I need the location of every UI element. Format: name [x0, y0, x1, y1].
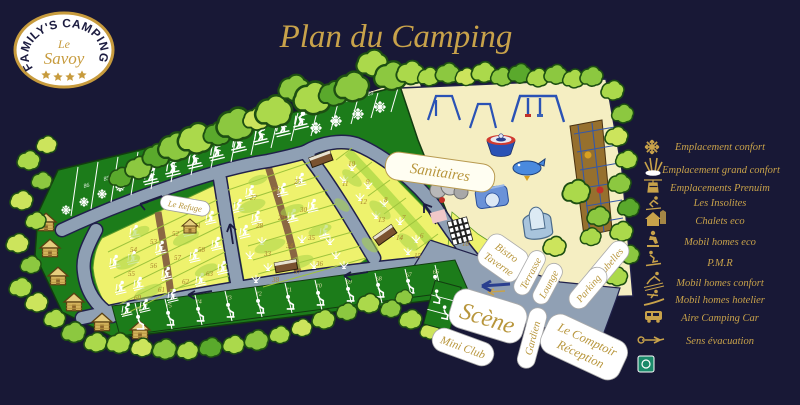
- svg-text:58: 58: [198, 246, 206, 254]
- svg-text:15: 15: [414, 252, 422, 260]
- svg-text:7: 7: [402, 214, 406, 222]
- svg-text:P.M.R: P.M.R: [706, 258, 733, 269]
- svg-text:Plan du Camping: Plan du Camping: [279, 19, 513, 55]
- svg-text:73: 73: [226, 295, 233, 302]
- svg-text:33: 33: [263, 250, 272, 258]
- svg-text:74: 74: [195, 298, 202, 306]
- svg-text:29: 29: [278, 214, 286, 222]
- svg-text:70: 70: [316, 283, 323, 290]
- svg-text:9: 9: [366, 178, 370, 186]
- svg-text:57: 57: [174, 254, 182, 262]
- svg-text:6: 6: [420, 232, 424, 240]
- svg-text:Savoy: Savoy: [44, 49, 85, 68]
- svg-text:56: 56: [150, 262, 158, 270]
- svg-text:72: 72: [256, 291, 263, 298]
- svg-text:38: 38: [271, 276, 280, 284]
- svg-text:36: 36: [315, 260, 324, 268]
- svg-text:28: 28: [256, 222, 264, 230]
- svg-text:Sens évacuation: Sens évacuation: [686, 336, 754, 347]
- svg-text:55: 55: [128, 270, 136, 278]
- svg-text:35: 35: [307, 234, 316, 242]
- svg-text:52: 52: [172, 230, 180, 238]
- svg-text:14: 14: [396, 234, 404, 242]
- svg-text:Emplacement grand confort: Emplacement grand confort: [661, 165, 781, 176]
- svg-text:25: 25: [294, 178, 302, 186]
- svg-text:63: 63: [206, 270, 214, 278]
- svg-text:10: 10: [348, 160, 356, 168]
- svg-text:Aire Camping Car: Aire Camping Car: [680, 313, 760, 324]
- svg-text:54: 54: [130, 246, 138, 254]
- svg-text:Emplacements Prenuim: Emplacements Prenuim: [669, 183, 770, 194]
- svg-text:Emplacement confort: Emplacement confort: [674, 142, 766, 153]
- svg-text:Chalets eco: Chalets eco: [695, 216, 744, 227]
- svg-text:Mobil homes confort: Mobil homes confort: [675, 278, 765, 289]
- svg-text:61: 61: [158, 286, 165, 294]
- svg-text:13: 13: [378, 216, 386, 224]
- svg-text:68: 68: [376, 276, 383, 283]
- svg-text:62: 62: [182, 278, 190, 286]
- svg-text:71: 71: [286, 287, 293, 294]
- svg-text:75: 75: [166, 303, 173, 310]
- svg-text:66: 66: [433, 269, 440, 276]
- svg-text:Mobil homes eco: Mobil homes eco: [683, 237, 756, 248]
- svg-text:69: 69: [346, 279, 353, 286]
- svg-text:53: 53: [150, 238, 158, 246]
- svg-text:Les Insolites: Les Insolites: [693, 198, 747, 209]
- svg-text:11: 11: [342, 180, 348, 188]
- svg-text:60: 60: [134, 294, 142, 302]
- svg-text:8: 8: [384, 196, 388, 204]
- svg-text:12: 12: [360, 198, 368, 206]
- svg-text:Mobil homes hotelier: Mobil homes hotelier: [674, 295, 766, 306]
- svg-text:27: 27: [250, 194, 258, 202]
- svg-text:26: 26: [272, 186, 280, 194]
- svg-text:34: 34: [285, 242, 294, 250]
- svg-text:30: 30: [299, 206, 308, 214]
- svg-text:76: 76: [136, 307, 143, 314]
